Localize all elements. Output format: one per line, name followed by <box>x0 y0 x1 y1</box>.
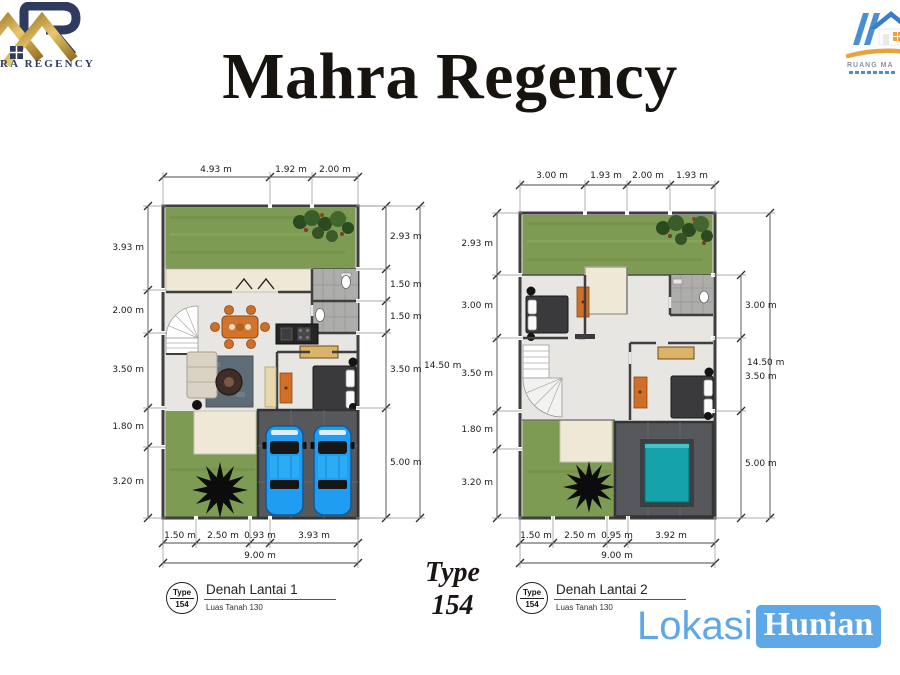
dim-label: 3.50 m <box>112 365 144 375</box>
dim-label: 1.50 m <box>164 531 196 541</box>
dim-label: 3.00 m <box>461 301 493 311</box>
dim-label: 1.80 m <box>461 425 493 435</box>
type-word: Type <box>410 556 495 589</box>
dim-label: 3.93 m <box>298 531 330 541</box>
type-word: Type <box>517 588 547 597</box>
dim-label: 1.93 m <box>676 171 708 181</box>
logo-right-wordmark: RUANG MA <box>847 62 894 69</box>
dim-label: 3.20 m <box>461 478 493 488</box>
page-title: Mahra Regency <box>0 44 900 110</box>
dim-label: 1.50 m <box>390 280 422 290</box>
dim-label: 2.00 m <box>632 171 664 181</box>
dim-label: 9.00 m <box>244 551 276 561</box>
watermark-hunian: Hunian <box>756 605 882 648</box>
plan-subtitle: Luas Tanah 130 <box>206 603 263 612</box>
type-154-label: Type 154 <box>410 556 495 622</box>
plan1-label: Type 154 Denah Lantai 1 Luas Tanah 130 <box>166 582 351 624</box>
terrace <box>560 420 612 462</box>
dim-label: 3.93 m <box>112 243 144 253</box>
pool <box>645 444 689 502</box>
divider <box>554 599 686 600</box>
brochure-slide: RA REGENCY Mahra Regency RUANG MA <box>0 0 900 675</box>
dim-label: 2.00 m <box>112 306 144 316</box>
dim-label: 3.00 m <box>536 171 568 181</box>
plan-title: Denah Lantai 2 <box>556 582 648 597</box>
logo-right-tagline-bar <box>849 71 895 74</box>
dim-label: 0.93 m <box>244 531 276 541</box>
dim-label: 3.50 m <box>390 365 422 375</box>
plan-title: Denah Lantai 1 <box>206 582 298 597</box>
type-badge: Type 154 <box>166 582 198 614</box>
balcony <box>585 267 627 314</box>
dim-label: 2.00 m <box>319 165 351 175</box>
dim-label: 1.80 m <box>112 422 144 432</box>
lokasihunian-watermark: Lokasi Hunian <box>637 604 881 649</box>
dim-label: 1.92 m <box>275 165 307 175</box>
plan1-graphics <box>161 204 360 520</box>
dim-label: 9.00 m <box>601 551 633 561</box>
dim-label: 5.00 m <box>745 459 777 469</box>
dim-label: 2.50 m <box>564 531 596 541</box>
roof-deck <box>615 422 713 517</box>
toilet-icon <box>700 291 709 303</box>
type-number: 154 <box>410 589 495 622</box>
desk <box>658 347 694 359</box>
dim-label: 2.50 m <box>207 531 239 541</box>
dim-label: 4.93 m <box>200 165 232 175</box>
bathroom <box>669 275 713 315</box>
divider <box>204 599 336 600</box>
type-number: 154 <box>520 598 543 610</box>
sofa-icon <box>187 352 253 410</box>
plan-subtitle: Luas Tanah 130 <box>556 603 613 612</box>
bathroom <box>311 269 358 333</box>
dim-label: 1.50 m <box>520 531 552 541</box>
ruang-mahra-logo: RUANG MA <box>845 5 900 77</box>
dim-label: 3.50 m <box>461 369 493 379</box>
kitchen-counter <box>276 324 318 344</box>
type-word: Type <box>167 588 197 597</box>
dim-label: 1.93 m <box>590 171 622 181</box>
dim-label: 14.50 m <box>747 358 784 368</box>
type-badge: Type 154 <box>516 582 548 614</box>
dim-label: 1.50 m <box>390 312 422 322</box>
plan2-graphics <box>518 211 715 520</box>
dim-label: 3.92 m <box>655 531 687 541</box>
dim-label: 2.93 m <box>461 239 493 249</box>
dim-label: 5.00 m <box>390 458 422 468</box>
dim-label: 2.93 m <box>390 232 422 242</box>
watermark-lokasi: Lokasi <box>637 604 753 649</box>
toilet-icon <box>342 276 351 289</box>
toilet-icon <box>316 309 325 322</box>
type-number: 154 <box>170 598 193 610</box>
dim-label: 0.95 m <box>601 531 633 541</box>
bed-icon <box>313 358 358 412</box>
dim-label: 3.00 m <box>745 301 777 311</box>
terrace <box>194 411 256 454</box>
car-icon <box>263 426 307 515</box>
plan2-garden <box>523 215 713 275</box>
dim-label: 3.50 m <box>745 372 777 382</box>
dim-label: 3.20 m <box>112 477 144 487</box>
car-icon <box>311 426 355 515</box>
porch <box>166 269 312 292</box>
floorplan-lantai-2 <box>470 160 800 580</box>
dim-label: 14.50 m <box>424 361 461 371</box>
